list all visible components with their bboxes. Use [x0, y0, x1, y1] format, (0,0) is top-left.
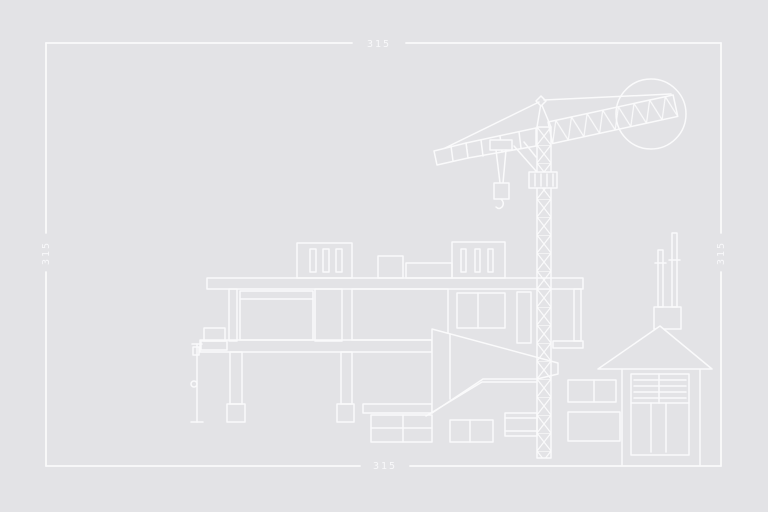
rooftop-box-a — [378, 256, 403, 278]
floor-slab — [200, 340, 432, 352]
rebar-rod-1 — [658, 250, 663, 307]
rooftop-box-b — [406, 263, 452, 278]
pallet-slab — [363, 404, 432, 413]
hoist-cables — [496, 150, 506, 183]
ac-unit-rim — [201, 341, 227, 350]
pilotis-column-1 — [230, 352, 242, 404]
house-block-stack-2 — [568, 412, 620, 441]
right-wall-foot — [553, 341, 583, 348]
right-wall-bar — [574, 289, 581, 341]
column-base-1 — [227, 404, 245, 422]
modern-building — [200, 242, 583, 422]
surveyor-pole — [191, 344, 203, 422]
pole-sight — [191, 381, 197, 387]
blueprint-canvas: 315 315 315 315 — [0, 0, 768, 512]
pilotis-column-2 — [341, 352, 352, 404]
ac-unit-top — [204, 328, 225, 341]
garage-door-slats — [634, 380, 686, 398]
trolley — [490, 140, 512, 150]
roof-slab — [207, 278, 583, 289]
dimension-label-right: 315 — [716, 241, 727, 265]
apex-pulley — [536, 96, 546, 106]
rebar-rod-2 — [672, 233, 677, 307]
hoist-assembly — [490, 140, 512, 209]
penthouse-right-slats — [461, 249, 493, 272]
dimension-label-left: 315 — [41, 241, 52, 265]
hook-block — [494, 183, 509, 199]
blueprint-illustration: 315 315 315 315 — [0, 0, 768, 512]
roof — [598, 326, 712, 369]
window-pair — [457, 293, 505, 328]
dimension-label-bottom: 315 — [373, 461, 397, 472]
mid-block — [450, 420, 493, 442]
chimney — [654, 307, 681, 329]
column-base-2 — [337, 404, 354, 422]
mast-side-block — [505, 413, 537, 436]
tall-window-bar — [517, 292, 531, 343]
material-stacks — [363, 404, 537, 442]
garage-door-panels — [651, 403, 666, 452]
gable-house — [568, 233, 712, 465]
pole-flag — [193, 347, 199, 355]
garage-door — [631, 374, 689, 455]
dimension-label-top: 315 — [367, 39, 391, 50]
wall-pillar — [315, 289, 342, 341]
house-block-stack-1 — [568, 380, 616, 402]
mast-side-block-lines — [505, 418, 537, 431]
hook-icon — [496, 199, 503, 209]
jib-frame — [548, 95, 678, 144]
penthouse-left-slats — [310, 249, 342, 272]
left-wall — [229, 289, 237, 341]
crane-jib — [548, 95, 678, 144]
